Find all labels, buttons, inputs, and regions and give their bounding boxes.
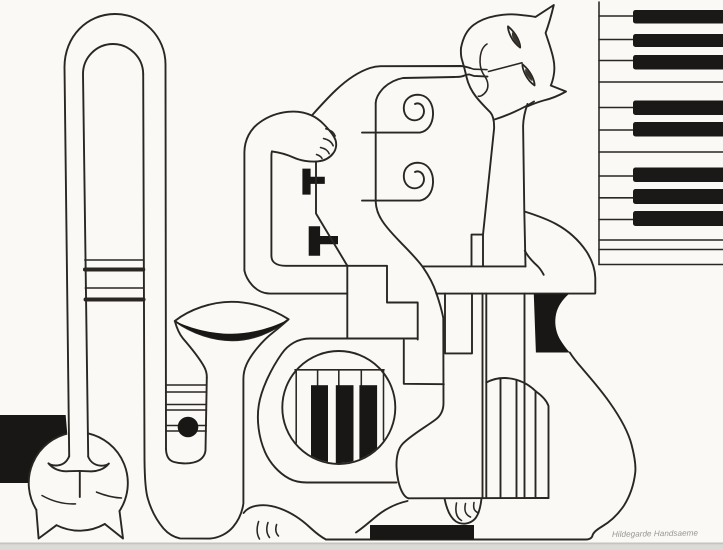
svg-text:Hildegarde Handsaeme: Hildegarde Handsaeme	[612, 528, 699, 539]
